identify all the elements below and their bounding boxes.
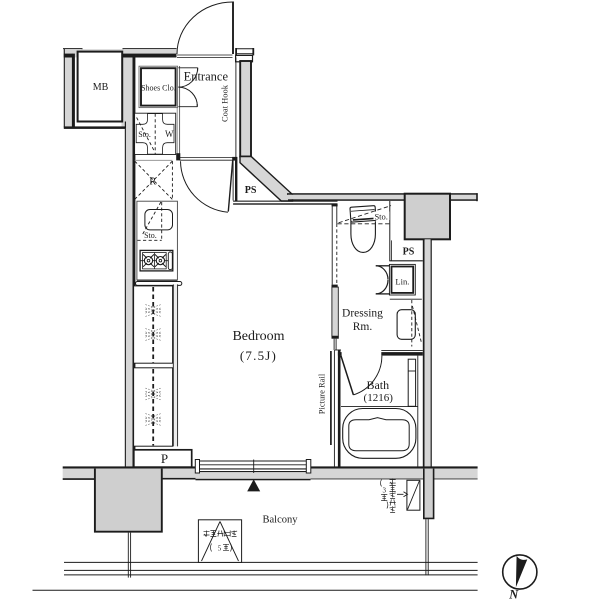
svg-text:5: 5 <box>218 545 222 553</box>
svg-text:Sto.: Sto. <box>144 231 157 240</box>
svg-text:PS: PS <box>245 185 257 196</box>
svg-text:Shoes Clo.: Shoes Clo. <box>141 83 176 92</box>
svg-text:(1216): (1216) <box>364 392 394 404</box>
svg-text:MB: MB <box>93 82 109 93</box>
svg-text:W: W <box>165 129 174 139</box>
svg-text:Picture Rail: Picture Rail <box>317 373 327 414</box>
svg-text:Bedroom: Bedroom <box>232 329 284 344</box>
svg-text:P: P <box>161 451 168 466</box>
svg-text:Sto.: Sto. <box>374 211 387 221</box>
svg-text:Entrance: Entrance <box>184 70 229 84</box>
svg-text:(7.5J): (7.5J) <box>240 348 277 363</box>
svg-text:PS: PS <box>403 247 415 258</box>
svg-text:N: N <box>508 588 519 600</box>
svg-text:Coat Hook: Coat Hook <box>219 84 229 122</box>
svg-text:Rm.: Rm. <box>353 321 373 333</box>
svg-text:Dressing: Dressing <box>342 307 383 319</box>
svg-text:3: 3 <box>383 486 387 494</box>
svg-text:Sto.: Sto. <box>138 130 151 139</box>
svg-text:Balcony: Balcony <box>263 515 299 526</box>
svg-text:Lin.: Lin. <box>395 276 409 286</box>
svg-text:R: R <box>149 177 156 188</box>
svg-text:Bath: Bath <box>366 378 389 392</box>
